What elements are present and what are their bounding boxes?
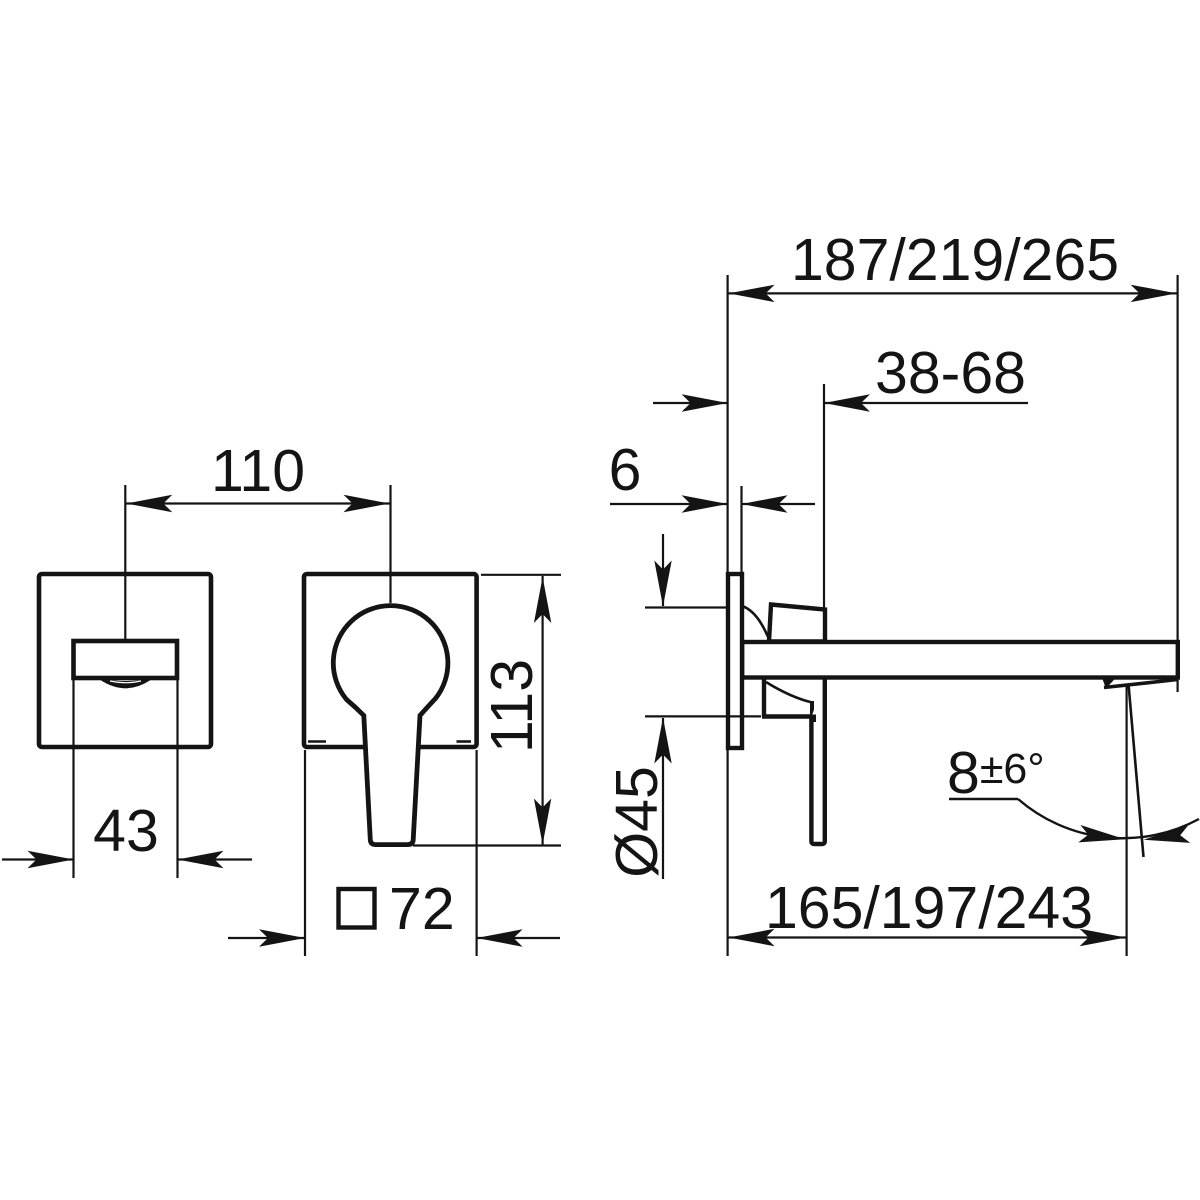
svg-text:Ø45: Ø45 — [604, 766, 670, 878]
svg-text:8±6°: 8±6° — [947, 740, 1045, 806]
svg-text:43: 43 — [93, 798, 159, 864]
svg-text:113: 113 — [479, 659, 545, 753]
svg-text:110: 110 — [211, 438, 305, 504]
svg-text:187/219/265: 187/219/265 — [791, 227, 1119, 293]
svg-text:6: 6 — [609, 437, 642, 503]
svg-text:72: 72 — [389, 876, 455, 942]
svg-text:38-68: 38-68 — [875, 340, 1026, 406]
svg-text:165/197/243: 165/197/243 — [765, 875, 1093, 941]
